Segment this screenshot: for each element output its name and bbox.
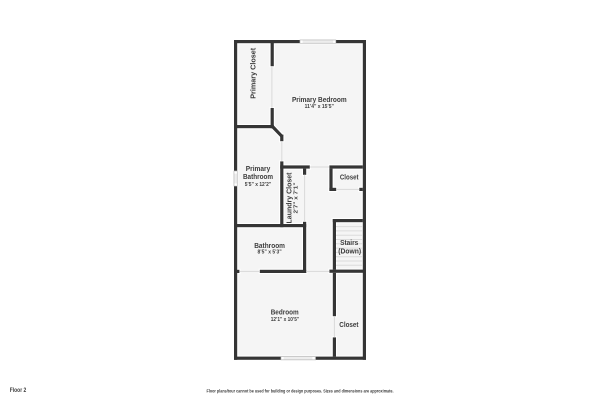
svg-text:Closet: Closet bbox=[340, 175, 359, 182]
svg-text:8’5” x 5’3”: 8’5” x 5’3” bbox=[258, 250, 282, 256]
svg-text:Laundry Closet: Laundry Closet bbox=[286, 172, 293, 224]
svg-text:Primary: Primary bbox=[246, 166, 271, 173]
svg-text:11’4” x 15’5”: 11’4” x 15’5” bbox=[305, 104, 335, 110]
svg-text:Floor plans/tour cannot be use: Floor plans/tour cannot be used for buil… bbox=[207, 389, 394, 394]
svg-text:Stairs: Stairs bbox=[340, 240, 358, 247]
svg-text:(Down): (Down) bbox=[338, 248, 361, 255]
svg-text:Primary Closet: Primary Closet bbox=[250, 47, 257, 99]
svg-text:5’5” x 12’2”: 5’5” x 12’2” bbox=[245, 182, 272, 188]
svg-text:Bathroom: Bathroom bbox=[243, 174, 273, 181]
svg-text:Primary Bedroom: Primary Bedroom bbox=[292, 97, 347, 104]
svg-text:Bedroom: Bedroom bbox=[271, 310, 299, 317]
svg-text:Closet: Closet bbox=[339, 322, 359, 329]
svg-text:Floor 2: Floor 2 bbox=[10, 388, 27, 394]
svg-text:12’1” x 10’5”: 12’1” x 10’5” bbox=[271, 317, 300, 323]
svg-text:2’7” x 7’1”: 2’7” x 7’1” bbox=[294, 182, 300, 213]
